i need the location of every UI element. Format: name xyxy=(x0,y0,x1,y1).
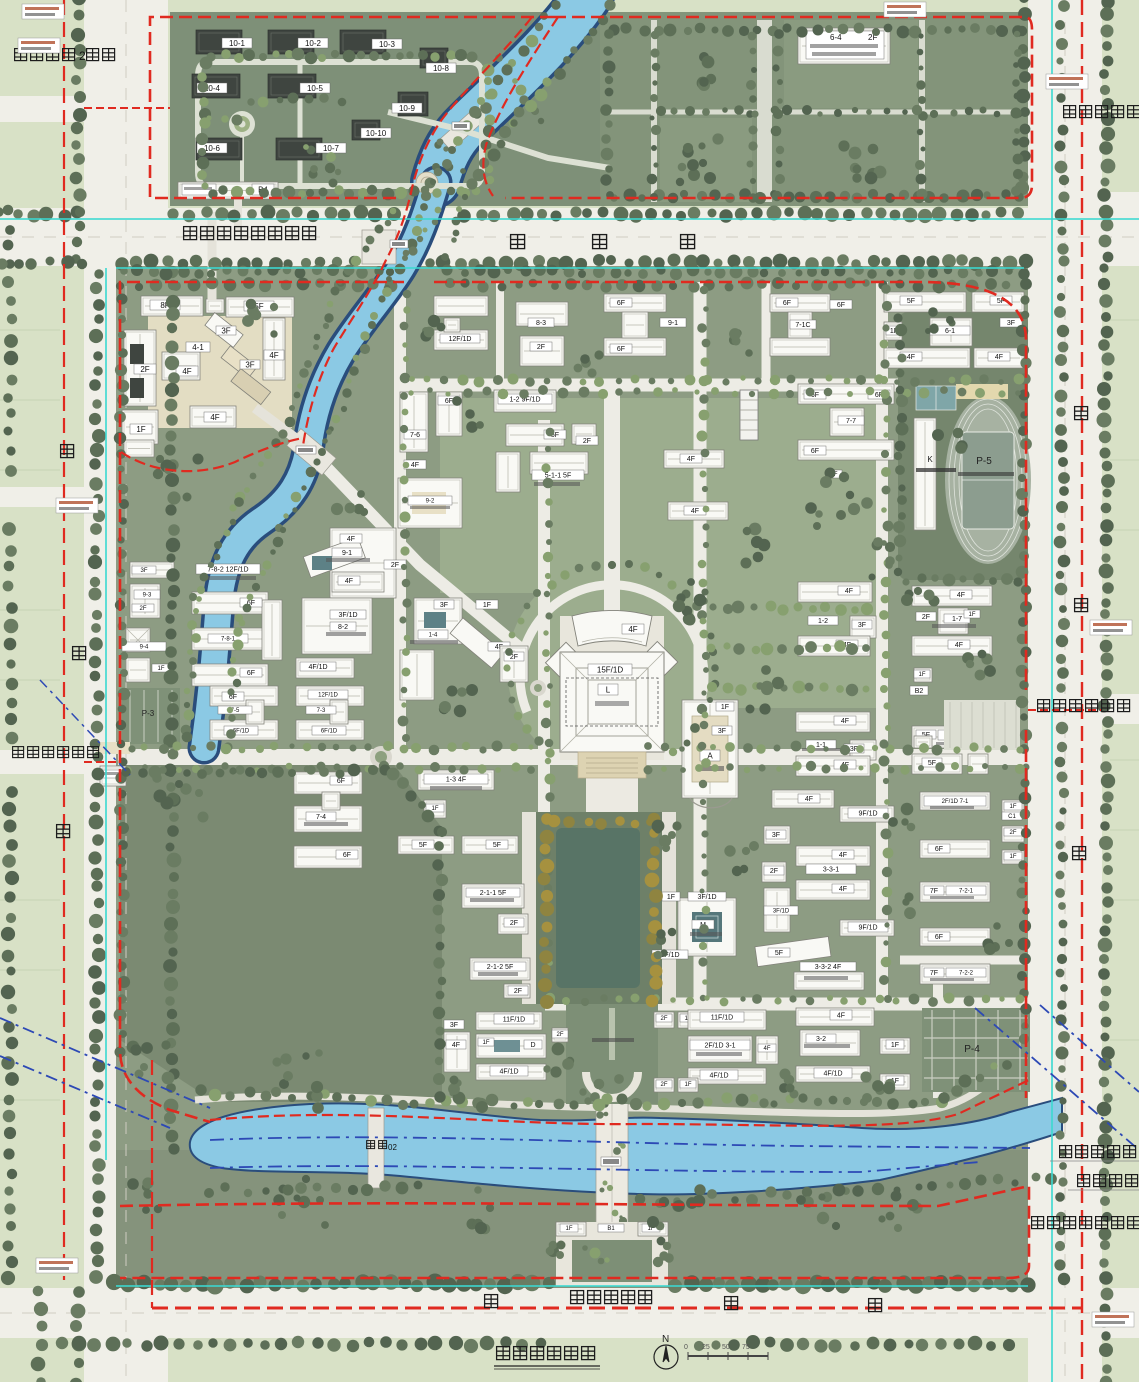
svg-text:3F: 3F xyxy=(440,602,448,609)
svg-text:9-3: 9-3 xyxy=(143,593,152,599)
svg-text:10-8: 10-8 xyxy=(433,64,450,73)
svg-text:4F: 4F xyxy=(845,588,853,595)
svg-text:B2: B2 xyxy=(915,688,924,695)
svg-text:1F: 1F xyxy=(482,1040,489,1046)
svg-text:7-2-2: 7-2-2 xyxy=(959,971,974,977)
svg-text:4F: 4F xyxy=(907,354,915,361)
svg-text:3F: 3F xyxy=(1007,320,1015,327)
svg-text:4F: 4F xyxy=(452,1042,460,1049)
svg-text:6F: 6F xyxy=(617,346,625,353)
svg-text:1-3 4F: 1-3 4F xyxy=(446,777,466,784)
svg-text:4F: 4F xyxy=(955,642,963,649)
svg-text:4F: 4F xyxy=(411,462,419,469)
svg-text:3F: 3F xyxy=(221,326,230,335)
svg-text:2F: 2F xyxy=(660,1082,667,1088)
svg-text:4F: 4F xyxy=(628,625,637,634)
svg-text:10-9: 10-9 xyxy=(399,104,416,113)
svg-text:15F/1D: 15F/1D xyxy=(597,665,623,674)
svg-text:6-4: 6-4 xyxy=(830,33,842,42)
svg-text:3-3-2 4F: 3-3-2 4F xyxy=(815,964,841,971)
svg-text:N: N xyxy=(662,1334,669,1345)
svg-text:7F: 7F xyxy=(930,970,938,977)
svg-text:3F: 3F xyxy=(858,622,866,629)
svg-text:6-1: 6-1 xyxy=(945,328,955,335)
svg-text:10-5: 10-5 xyxy=(307,84,324,93)
svg-text:7-4: 7-4 xyxy=(316,814,326,821)
svg-text:8-3: 8-3 xyxy=(536,320,546,327)
svg-text:2F: 2F xyxy=(660,1016,667,1022)
svg-text:2F: 2F xyxy=(556,1032,563,1038)
svg-text:2F: 2F xyxy=(770,868,778,875)
svg-text:6F/1D: 6F/1D xyxy=(321,729,338,735)
svg-text:9-1: 9-1 xyxy=(342,550,352,557)
svg-text:1F: 1F xyxy=(157,666,164,672)
svg-text:10-7: 10-7 xyxy=(323,144,340,153)
svg-text:1F: 1F xyxy=(721,704,729,711)
svg-text:4F: 4F xyxy=(839,852,847,859)
svg-text:2F: 2F xyxy=(510,920,518,927)
svg-text:10-6: 10-6 xyxy=(204,144,221,153)
svg-text:4F: 4F xyxy=(687,456,695,463)
svg-text:10-2: 10-2 xyxy=(305,39,322,48)
svg-text:1F: 1F xyxy=(968,612,975,618)
svg-text:3F/1D: 3F/1D xyxy=(773,909,790,915)
svg-text:P-5: P-5 xyxy=(976,456,992,467)
svg-text:4F: 4F xyxy=(182,367,191,376)
svg-text:2: 2 xyxy=(79,49,86,63)
svg-text:1F: 1F xyxy=(1009,804,1016,810)
svg-text:6F: 6F xyxy=(783,300,791,307)
svg-text:2F: 2F xyxy=(583,438,591,445)
svg-text:1-2: 1-2 xyxy=(818,618,828,625)
svg-text:10-10: 10-10 xyxy=(366,129,387,138)
svg-text:7-8-2 12F/1D: 7-8-2 12F/1D xyxy=(207,567,248,574)
svg-text:6F: 6F xyxy=(337,778,345,785)
svg-text:3F/1D: 3F/1D xyxy=(697,894,716,901)
svg-text:1-7: 1-7 xyxy=(952,616,962,623)
svg-text:4F: 4F xyxy=(347,536,355,543)
svg-text:6F: 6F xyxy=(811,448,819,455)
svg-text:0: 0 xyxy=(684,1344,688,1351)
svg-text:1F: 1F xyxy=(1009,854,1016,860)
svg-text:1-4: 1-4 xyxy=(429,633,438,639)
svg-text:7-8-1: 7-8-1 xyxy=(221,637,236,643)
svg-text:4F: 4F xyxy=(210,413,219,422)
svg-text:B1: B1 xyxy=(607,1226,615,1232)
svg-text:12F/1D: 12F/1D xyxy=(449,336,472,343)
svg-text:9F/1D: 9F/1D xyxy=(858,811,877,818)
svg-text:11F/1D: 11F/1D xyxy=(711,1015,733,1022)
svg-text:3F/1D: 3F/1D xyxy=(338,612,357,619)
svg-text:1F: 1F xyxy=(891,1042,899,1049)
svg-text:75: 75 xyxy=(742,1344,750,1351)
svg-text:1F: 1F xyxy=(483,602,491,609)
svg-text:1F: 1F xyxy=(136,425,145,434)
svg-text:2-1-2 5F: 2-1-2 5F xyxy=(487,964,513,971)
svg-text:7-1C: 7-1C xyxy=(795,322,810,329)
svg-text:2F: 2F xyxy=(140,365,149,374)
svg-text:4F: 4F xyxy=(691,508,699,515)
svg-text:6F: 6F xyxy=(445,398,453,405)
svg-text:12F/1D: 12F/1D xyxy=(318,693,338,699)
svg-text:4F: 4F xyxy=(995,354,1003,361)
svg-text:5F: 5F xyxy=(419,842,427,849)
svg-text:3F: 3F xyxy=(772,832,780,839)
svg-text:6F: 6F xyxy=(935,934,943,941)
svg-text:9-1: 9-1 xyxy=(668,320,678,327)
svg-text:2F: 2F xyxy=(922,614,930,621)
svg-text:1F: 1F xyxy=(565,1226,572,1232)
svg-text:3F: 3F xyxy=(718,728,726,735)
svg-text:5F: 5F xyxy=(493,842,501,849)
svg-text:02: 02 xyxy=(388,1143,397,1152)
svg-text:L: L xyxy=(606,685,611,694)
svg-text:3F: 3F xyxy=(140,568,147,574)
svg-text:4F/1D: 4F/1D xyxy=(308,664,327,671)
svg-text:4-1: 4-1 xyxy=(192,343,204,352)
svg-text:4F/1D: 4F/1D xyxy=(709,1073,728,1080)
svg-text:50: 50 xyxy=(722,1344,730,1351)
svg-text:1F: 1F xyxy=(431,806,438,812)
svg-text:11F/1D: 11F/1D xyxy=(503,1017,525,1024)
svg-text:P-4: P-4 xyxy=(964,1044,980,1055)
svg-text:1F: 1F xyxy=(684,1082,691,1088)
svg-text:2F/1D 7-1: 2F/1D 7-1 xyxy=(942,799,969,805)
svg-text:3-2: 3-2 xyxy=(816,1036,826,1043)
svg-text:4F/1D: 4F/1D xyxy=(499,1069,518,1076)
svg-text:7-3: 7-3 xyxy=(317,708,326,714)
svg-text:4F: 4F xyxy=(269,351,278,360)
svg-text:6F: 6F xyxy=(837,302,845,309)
svg-text:K: K xyxy=(927,455,933,464)
svg-text:2F: 2F xyxy=(139,606,146,612)
svg-text:4F/1D: 4F/1D xyxy=(823,1071,842,1078)
svg-text:6F: 6F xyxy=(343,852,351,859)
svg-text:4F: 4F xyxy=(805,796,813,803)
svg-text:D: D xyxy=(530,1042,535,1049)
svg-text:1F: 1F xyxy=(667,894,675,901)
svg-text:C1: C1 xyxy=(1008,814,1016,820)
svg-text:4F: 4F xyxy=(345,578,353,585)
svg-text:5F: 5F xyxy=(907,298,915,305)
svg-text:4F: 4F xyxy=(837,1013,845,1020)
svg-text:10-1: 10-1 xyxy=(229,39,246,48)
svg-text:6F: 6F xyxy=(617,300,625,307)
svg-text:25: 25 xyxy=(702,1344,710,1351)
svg-text:7F: 7F xyxy=(930,888,938,895)
svg-text:2F: 2F xyxy=(1009,830,1016,836)
svg-text:P-3: P-3 xyxy=(142,709,155,718)
svg-text:3F: 3F xyxy=(245,360,254,369)
svg-text:4F: 4F xyxy=(763,1046,770,1052)
svg-text:5F: 5F xyxy=(928,760,936,767)
svg-text:1F: 1F xyxy=(918,672,925,678)
svg-text:10-3: 10-3 xyxy=(379,40,396,49)
svg-text:6F: 6F xyxy=(935,846,943,853)
svg-text:7-2-1: 7-2-1 xyxy=(959,889,974,895)
svg-text:7-6: 7-6 xyxy=(410,432,420,439)
svg-text:2F: 2F xyxy=(514,988,522,995)
svg-text:2F: 2F xyxy=(391,562,399,569)
svg-text:4F: 4F xyxy=(957,592,965,599)
svg-text:5F: 5F xyxy=(775,950,783,957)
svg-text:6F: 6F xyxy=(247,670,255,677)
svg-text:4F: 4F xyxy=(841,718,849,725)
svg-text:2-1-1 5F: 2-1-1 5F xyxy=(480,890,506,897)
svg-text:7-7: 7-7 xyxy=(846,418,856,425)
svg-text:9-2: 9-2 xyxy=(426,499,435,505)
svg-text:4F: 4F xyxy=(839,886,847,893)
svg-text:9-4: 9-4 xyxy=(140,645,149,651)
svg-text:2F: 2F xyxy=(537,344,545,351)
svg-text:2F/1D 3-1: 2F/1D 3-1 xyxy=(704,1043,735,1050)
svg-text:3F: 3F xyxy=(450,1022,458,1029)
svg-text:8-2: 8-2 xyxy=(338,624,348,631)
svg-text:9F/1D: 9F/1D xyxy=(858,925,877,932)
svg-text:3-3-1: 3-3-1 xyxy=(823,867,839,874)
